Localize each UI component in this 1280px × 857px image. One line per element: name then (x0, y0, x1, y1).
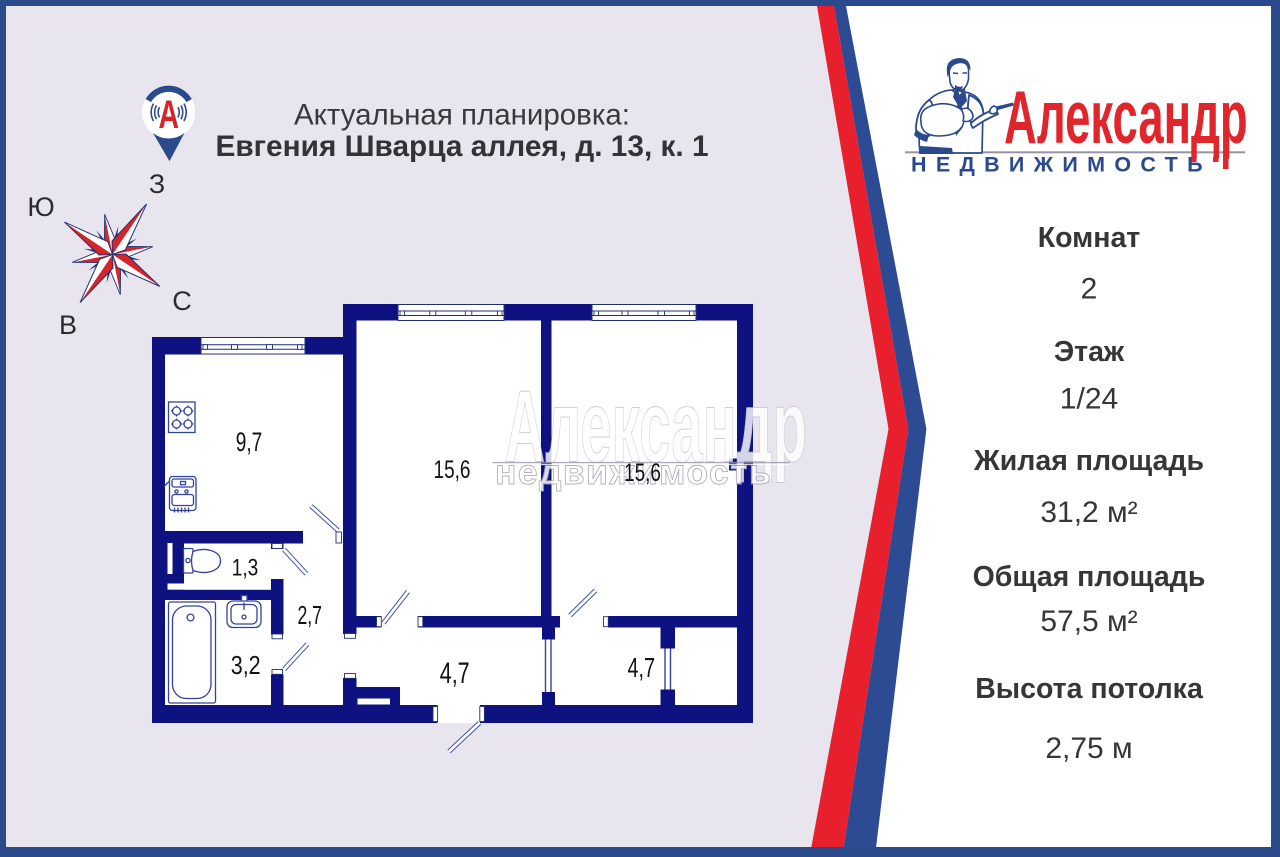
svg-text:15,6: 15,6 (434, 456, 471, 484)
svg-text:А: А (158, 93, 179, 137)
svg-text:2,7: 2,7 (297, 600, 322, 630)
svg-text:Этаж: Этаж (1054, 336, 1125, 368)
svg-text:4,7: 4,7 (440, 657, 470, 690)
svg-text:2,75 м: 2,75 м (1045, 732, 1132, 765)
svg-text:Ю: Ю (27, 192, 54, 222)
svg-text:2: 2 (1081, 273, 1098, 306)
svg-text:Евгения Шварца аллея, д. 13, к: Евгения Шварца аллея, д. 13, к. 1 (215, 130, 708, 163)
svg-text:15,6: 15,6 (624, 459, 661, 487)
svg-text:Общая площадь: Общая площадь (973, 561, 1206, 593)
svg-text:1/24: 1/24 (1060, 383, 1118, 416)
svg-text:Актуальная планировка:: Актуальная планировка: (294, 99, 630, 132)
svg-text:З: З (149, 169, 165, 199)
svg-text:НЕДВИЖИМОСТЬ: НЕДВИЖИМОСТЬ (911, 153, 1212, 177)
svg-text:1,3: 1,3 (232, 555, 259, 582)
svg-text:3,2: 3,2 (231, 650, 261, 680)
svg-text:31,2 м²: 31,2 м² (1040, 496, 1137, 529)
svg-text:Жилая площадь: Жилая площадь (973, 445, 1204, 477)
svg-text:9,7: 9,7 (236, 427, 263, 457)
svg-text:Высота потолка: Высота потолка (975, 673, 1204, 705)
svg-text:57,5 м²: 57,5 м² (1040, 605, 1137, 638)
svg-text:В: В (59, 310, 77, 340)
svg-text:4,7: 4,7 (628, 652, 656, 683)
svg-text:Александр: Александр (1004, 76, 1248, 160)
svg-text:С: С (172, 286, 192, 316)
svg-text:Комнат: Комнат (1038, 222, 1141, 254)
